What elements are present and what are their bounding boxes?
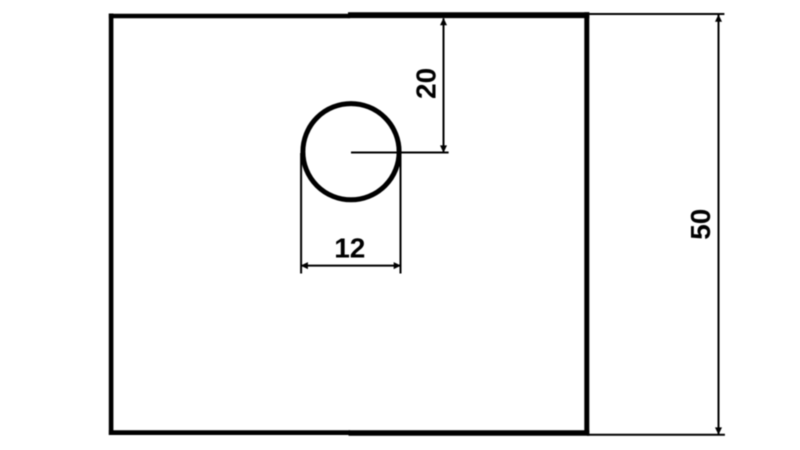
svg-text:20: 20 bbox=[411, 68, 442, 99]
svg-text:12: 12 bbox=[334, 233, 365, 264]
svg-text:50: 50 bbox=[685, 209, 716, 240]
